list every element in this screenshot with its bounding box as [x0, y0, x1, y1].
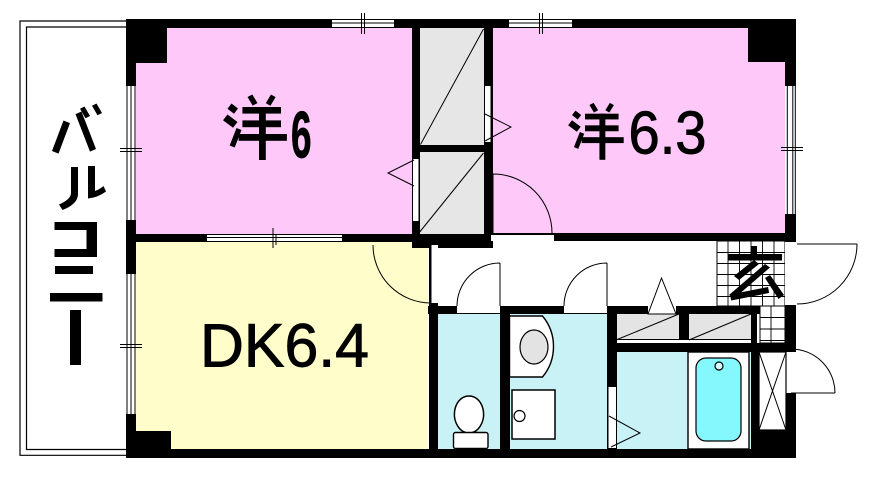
svg-text:6.3: 6.3: [629, 99, 707, 167]
svg-text:DK6.4: DK6.4: [200, 312, 369, 380]
svg-text:6: 6: [291, 98, 312, 172]
